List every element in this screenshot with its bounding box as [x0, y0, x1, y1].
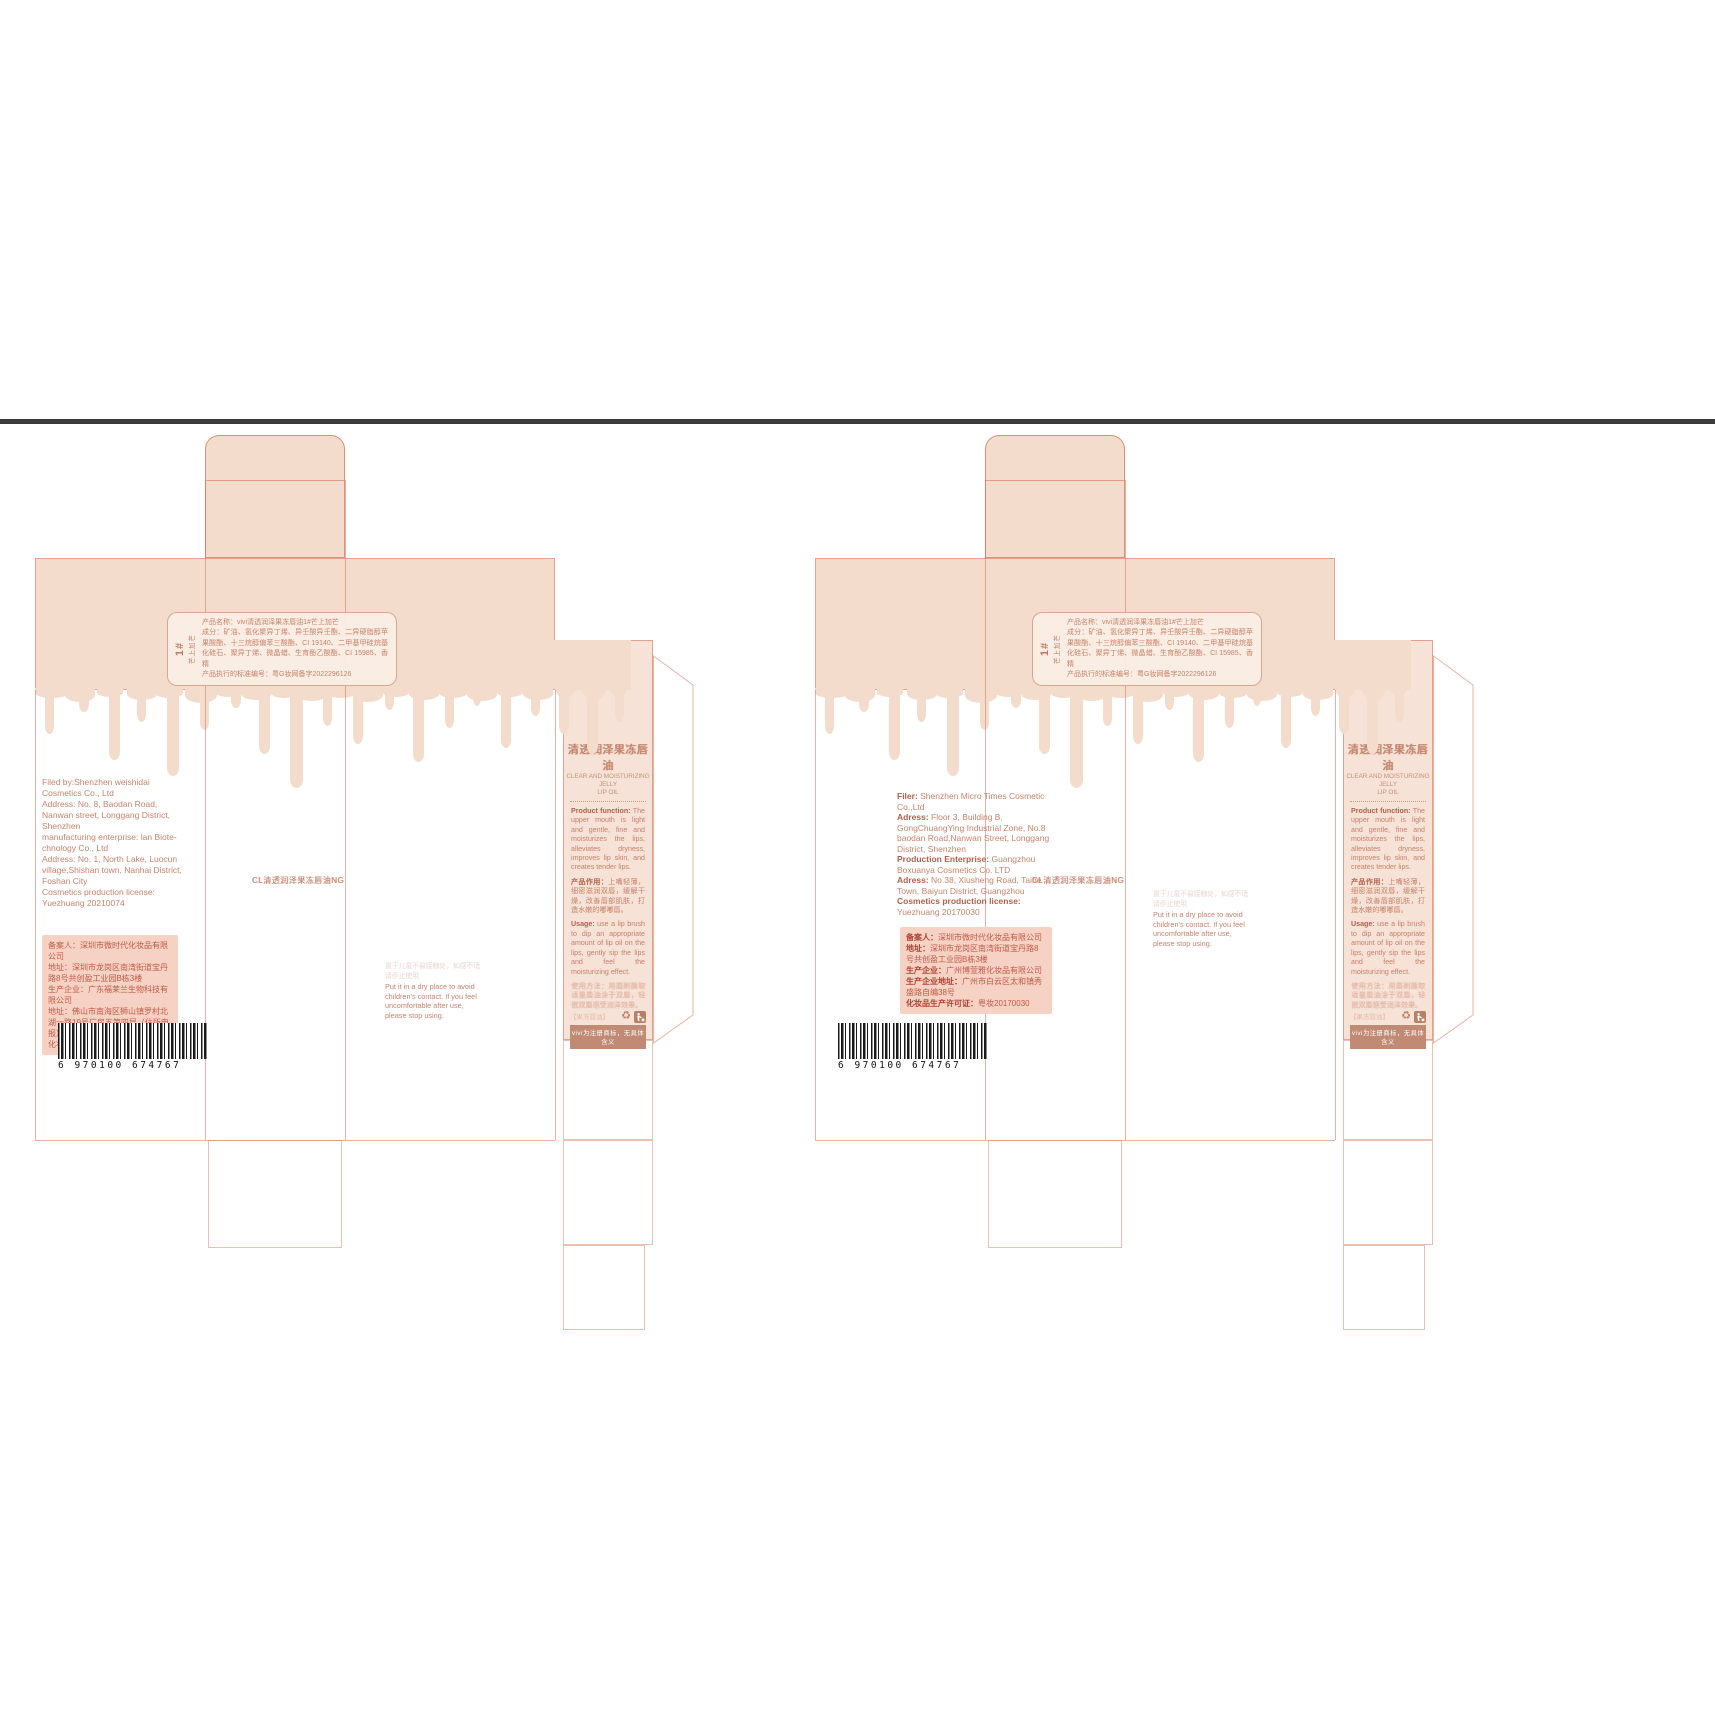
usage: Usage: use a lip brush to dip an appropr… — [564, 920, 652, 976]
footer-faint-text: 【果冻唇油】 — [570, 1011, 618, 1021]
drip — [1193, 688, 1204, 762]
filing-label: Production Enterprise: — [897, 854, 989, 864]
drip — [1070, 688, 1083, 788]
crease-line — [815, 690, 816, 1140]
panel-flap-box — [1343, 1140, 1433, 1245]
usage-text: use a lip brush to dip an appropriate am… — [571, 920, 645, 975]
drip — [1039, 688, 1050, 754]
drip — [889, 688, 900, 760]
panel-flap-box — [563, 1245, 645, 1330]
drip — [259, 688, 270, 754]
crease-line — [206, 480, 344, 481]
mfr-label: 生产企业地址： — [906, 977, 962, 986]
trademark-bar: vivi为注册商标，无具体含义 — [1350, 1025, 1426, 1049]
mfr-label: 生产企业： — [906, 966, 946, 975]
recycle-icon: ♻ — [621, 1011, 631, 1022]
drip — [1133, 688, 1143, 744]
drip — [845, 688, 875, 702]
mfr-value: 粤妆20170030 — [978, 999, 1030, 1008]
barcode-bars — [838, 1023, 988, 1059]
ingredients-text: 产品名称：vivi清透润泽果冻唇油1#芒上加芒 成分：矿油、氢化聚异丁烯、异壬酸… — [202, 613, 396, 686]
variant-name: 芒上加芒 — [186, 634, 196, 664]
filing-info: Filed by:Shenzhen weishidai Cosmetics Co… — [42, 777, 182, 909]
tuck-flap — [205, 435, 345, 558]
variant-number: 1# — [174, 634, 186, 664]
product-function-label: Product function: — [571, 807, 631, 815]
crease-line — [205, 690, 206, 1140]
drip — [1011, 688, 1021, 708]
mfr-label: 化妆品生产许可证： — [906, 999, 978, 1008]
warning-body: Put it in a dry place to avoid children'… — [1153, 910, 1253, 948]
bottom-flap — [208, 1140, 342, 1248]
recycle-icon: ♻ — [1401, 1011, 1411, 1022]
variant-name: 芒上加芒 — [1051, 634, 1061, 664]
filing-label: Cosmetics production license: — [897, 896, 1021, 906]
crease-line — [985, 480, 986, 690]
drip — [65, 688, 95, 702]
divider-rule — [0, 419, 1715, 424]
mfr-value: 广州博萱雅化妆品有限公司 — [946, 966, 1042, 975]
product-function-label: Product function: — [1351, 807, 1411, 815]
variant-number: 1# — [1039, 634, 1051, 664]
warning-text: 置于儿童不易接触处，如感不适请停止使用 Put it in a dry plac… — [385, 962, 481, 1021]
panel-flap-box — [563, 1040, 653, 1140]
bottom-flap — [988, 1140, 1122, 1248]
drip — [947, 688, 959, 776]
warning-faint-line: 置于儿童不易接触处，如感不适请停止使用 — [1153, 890, 1253, 909]
crease-line — [555, 690, 556, 1140]
product-function-cn: 产品作用：上嘴轻薄，细密滋润双唇，缓解干燥，改善唇部肌肤，打造水嫩的嘟嘟唇。 — [564, 878, 652, 916]
drip — [290, 688, 303, 788]
ingredients-label: 1# 芒上加芒 产品名称：vivi清透润泽果冻唇油1#芒上加芒 成分：矿油、氢化… — [167, 612, 397, 686]
crease-line — [345, 690, 346, 1140]
drip — [353, 688, 363, 744]
panel-footer: 【果冻唇油】 ♻ — [1344, 1010, 1432, 1022]
info-panel: 清透润泽果冻唇油 CLEAR AND MOISTURIZING JELLY LI… — [563, 640, 653, 1040]
warning-text: 置于儿童不易接触处，如感不适请停止使用 Put it in a dry plac… — [1153, 890, 1253, 949]
warning-body: Put it in a dry place to avoid children'… — [385, 982, 481, 1020]
tidyman-icon — [1414, 1010, 1426, 1022]
info-panel: 清透润泽果冻唇油 CLEAR AND MOISTURIZING JELLY LI… — [1343, 640, 1433, 1040]
drip — [137, 688, 146, 722]
dotted-divider — [1350, 801, 1426, 802]
filing-value: Shenzhen Micro Times Cosmetic Co.,Ltd — [897, 791, 1044, 812]
tidyman-icon — [634, 1010, 646, 1022]
variant-tag: 1# 芒上加芒 — [1033, 613, 1067, 685]
dieline-right: 1# 芒上加芒 产品名称：vivi清透润泽果冻唇油1#芒上加芒 成分：矿油、氢化… — [815, 425, 1475, 1385]
footer-faint-text: 【果冻唇油】 — [1350, 1011, 1398, 1021]
drip — [917, 688, 926, 722]
product-title-en: LIP OIL — [564, 789, 652, 797]
mfr-value: 深圳市微时代化妆品有限公司 — [938, 933, 1042, 942]
usage-cn-faint: 使用方法：用唇刷蘸取适量唇油涂于双唇，轻抿双唇感受润泽效果。 — [1344, 982, 1432, 1010]
product-title-cn: 清透润泽果冻唇油 — [1344, 741, 1432, 773]
usage-label: Usage: — [571, 920, 595, 928]
product-title-en: LIP OIL — [1344, 789, 1432, 797]
crease-line — [986, 480, 1124, 481]
drip — [185, 688, 217, 703]
panel-flap-box — [1343, 1245, 1425, 1330]
product-function-cn-label: 产品作用： — [1351, 878, 1388, 886]
dotted-divider — [570, 801, 646, 802]
drip — [1133, 688, 1163, 702]
glue-flap — [653, 655, 694, 1045]
filing-label: Filer: — [897, 791, 918, 801]
ingredients-label: 1# 芒上加芒 产品名称：vivi清透润泽果冻唇油1#芒上加芒 成分：矿油、氢化… — [1032, 612, 1262, 686]
dieline-left: 1# 芒上加芒 产品名称：vivi清透润泽果冻唇油1#芒上加芒 成分：矿油、氢化… — [35, 425, 695, 1385]
drip — [825, 688, 834, 734]
product-function: Product function: The upper mouth is lig… — [564, 807, 652, 873]
drip — [473, 688, 481, 706]
filing-value: Yuezhuang 20170030 — [897, 907, 980, 917]
usage-text: use a lip brush to dip an appropriate am… — [1351, 920, 1425, 975]
usage-label: Usage: — [1351, 920, 1375, 928]
ingredients-text: 产品名称：vivi清透润泽果冻唇油1#芒上加芒 成分：矿油、氢化聚异丁烯、异壬酸… — [1067, 613, 1261, 686]
barcode-bars — [58, 1023, 208, 1059]
crease-line — [1335, 690, 1336, 1140]
drip — [353, 688, 383, 702]
drip — [531, 688, 540, 716]
filing-info: Filer: Shenzhen Micro Times Cosmetic Co.… — [897, 791, 1065, 917]
drip — [1103, 688, 1112, 726]
product-function-text: The upper mouth is light and gentle, fin… — [571, 807, 645, 871]
product-title-en: CLEAR AND MOISTURIZING JELLY — [564, 773, 652, 789]
drip — [231, 688, 241, 708]
drip — [45, 688, 54, 734]
barcode: 6 970100 674767 — [58, 1023, 208, 1071]
trademark-bar: vivi为注册商标，无具体含义 — [570, 1025, 646, 1049]
panel-flap-box — [1343, 1040, 1433, 1140]
product-function: Product function: The upper mouth is lig… — [1344, 807, 1432, 873]
product-title-en: CLEAR AND MOISTURIZING JELLY — [1344, 773, 1432, 789]
panel-flap-box — [563, 1140, 653, 1245]
product-function-cn: 产品作用：上嘴轻薄，细密滋润双唇，缓解干燥，改善唇部肌肤，打造水嫩的嘟嘟唇。 — [1344, 878, 1432, 916]
mfr-label: 备案人： — [906, 933, 938, 942]
warning-faint-line: 置于儿童不易接触处，如感不适请停止使用 — [385, 962, 481, 981]
mfr-label: 地址： — [906, 944, 930, 953]
drip — [1165, 688, 1174, 710]
filing-label: Adress: — [897, 875, 929, 885]
panel-footer: 【果冻唇油】 ♻ — [564, 1010, 652, 1022]
barcode: 6 970100 674767 — [838, 1023, 988, 1071]
usage-cn-faint: 使用方法：用唇刷蘸取适量唇油涂于双唇，轻抿双唇感受润泽效果。 — [564, 982, 652, 1010]
artboard: 1# 芒上加芒 产品名称：vivi清透润泽果冻唇油1#芒上加芒 成分：矿油、氢化… — [0, 0, 1715, 1715]
variant-tag: 1# 芒上加芒 — [168, 613, 202, 685]
drip — [413, 688, 424, 762]
filing-label: Adress: — [897, 812, 929, 822]
drip — [965, 688, 997, 703]
drip — [323, 688, 332, 726]
drip — [859, 688, 869, 712]
tuck-flap — [985, 435, 1125, 558]
drip — [1225, 688, 1234, 728]
crease-line — [35, 690, 36, 1140]
front-panel-text: CL清透润泽果冻唇油NG — [213, 875, 383, 886]
drip — [167, 688, 179, 776]
drip — [1311, 688, 1320, 716]
glue-flap — [1433, 655, 1474, 1045]
product-function-cn-label: 产品作用： — [571, 878, 608, 886]
drip — [385, 688, 394, 710]
product-function-text: The upper mouth is light and gentle, fin… — [1351, 807, 1425, 871]
drip — [79, 688, 89, 712]
barcode-digits: 6 970100 674767 — [58, 1060, 208, 1071]
drip — [109, 688, 120, 760]
barcode-digits: 6 970100 674767 — [838, 1060, 988, 1071]
product-title-cn: 清透润泽果冻唇油 — [564, 741, 652, 773]
crease-line — [1125, 690, 1126, 1140]
drip — [501, 688, 511, 748]
usage: Usage: use a lip brush to dip an appropr… — [1344, 920, 1432, 976]
manufacturer-box: 备案人：深圳市微时代化妆品有限公司 地址：深圳市龙岗区南湾街道宝丹路8号共创盈工… — [900, 927, 1052, 1014]
drip — [1281, 688, 1291, 748]
drip — [445, 688, 454, 728]
drip — [1253, 688, 1261, 706]
